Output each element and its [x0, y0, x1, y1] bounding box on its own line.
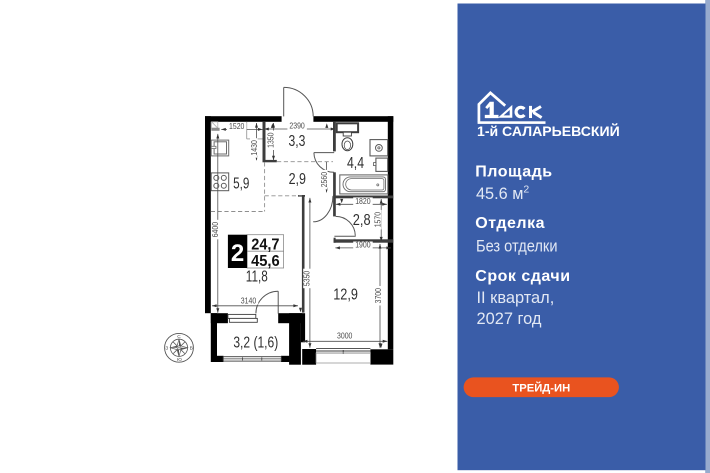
svg-text:1820: 1820 — [355, 196, 371, 206]
svg-text:3,2 (1,6): 3,2 (1,6) — [233, 334, 278, 351]
svg-text:1520: 1520 — [229, 121, 245, 131]
svg-text:Ю: Ю — [177, 357, 182, 363]
svg-text:1-й САЛАРЬЕВСКИЙ: 1-й САЛАРЬЕВСКИЙ — [477, 124, 620, 139]
svg-text:1570: 1570 — [373, 212, 383, 228]
svg-text:4,4: 4,4 — [347, 155, 364, 172]
svg-text:2027 год: 2027 год — [477, 310, 542, 328]
svg-text:3000: 3000 — [337, 331, 353, 341]
svg-text:1900: 1900 — [355, 240, 371, 250]
svg-text:Срок сдачи: Срок сдачи — [475, 268, 570, 285]
svg-text:11,8: 11,8 — [246, 269, 268, 286]
svg-text:Отделка: Отделка — [475, 215, 545, 232]
svg-text:II квартал,: II квартал, — [477, 289, 555, 307]
svg-text:2390: 2390 — [289, 121, 305, 131]
svg-text:ТРЕЙД-ИН: ТРЕЙД-ИН — [512, 381, 570, 394]
svg-text:Без отделки: Без отделки — [476, 237, 558, 255]
svg-text:Площадь: Площадь — [475, 163, 552, 180]
svg-text:6400: 6400 — [210, 222, 220, 238]
svg-text:5350: 5350 — [302, 270, 312, 286]
svg-text:2,9: 2,9 — [289, 171, 306, 188]
svg-text:2,8: 2,8 — [353, 212, 371, 229]
svg-text:1350: 1350 — [266, 132, 276, 148]
svg-text:С: С — [177, 334, 181, 340]
svg-text:3,3: 3,3 — [289, 133, 306, 150]
svg-text:3700: 3700 — [373, 288, 383, 304]
svg-text:1430: 1430 — [249, 140, 259, 156]
svg-text:45,6: 45,6 — [251, 253, 280, 270]
svg-text:2560: 2560 — [319, 172, 329, 188]
svg-text:45.6 м2: 45.6 м2 — [476, 184, 529, 204]
svg-text:12,9: 12,9 — [333, 286, 358, 303]
svg-text:3140: 3140 — [241, 295, 257, 305]
svg-text:З: З — [165, 346, 168, 352]
svg-text:5,9: 5,9 — [233, 176, 249, 193]
svg-text:24,7: 24,7 — [251, 236, 279, 253]
svg-text:2: 2 — [231, 240, 244, 267]
svg-text:В: В — [190, 346, 193, 352]
